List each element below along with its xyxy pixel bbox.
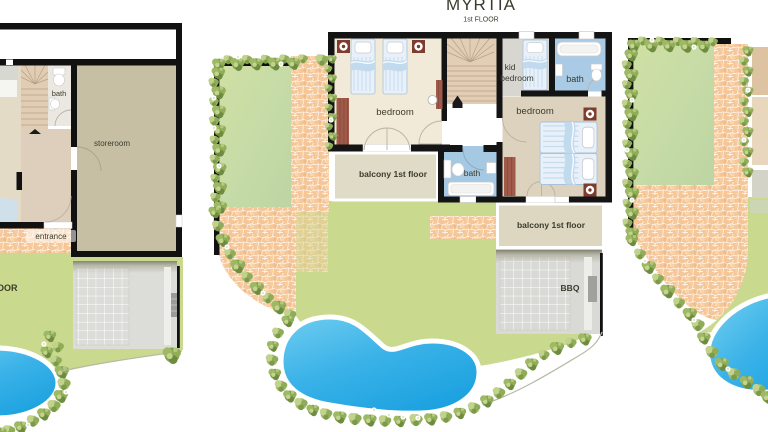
svg-text:balcony 1st floor: balcony 1st floor (517, 220, 586, 230)
svg-text:BBQ: BBQ (561, 283, 580, 293)
svg-text:bedroom: bedroom (376, 107, 414, 118)
svg-text:entrance: entrance (35, 232, 67, 241)
svg-text:bath: bath (52, 89, 67, 98)
svg-text:balcony 1st floor: balcony 1st floor (359, 169, 428, 179)
svg-text:MYRTIA: MYRTIA (446, 0, 516, 14)
svg-text:bath: bath (566, 74, 584, 84)
svg-text:bath: bath (464, 168, 481, 178)
svg-text:bedroom: bedroom (516, 106, 554, 117)
svg-text:bedroom: bedroom (500, 73, 534, 83)
svg-text:storeroom: storeroom (94, 139, 130, 148)
svg-text:1st FLOOR: 1st FLOOR (463, 17, 498, 24)
svg-text:FLOOR: FLOOR (0, 283, 18, 293)
svg-text:kid: kid (505, 62, 516, 72)
